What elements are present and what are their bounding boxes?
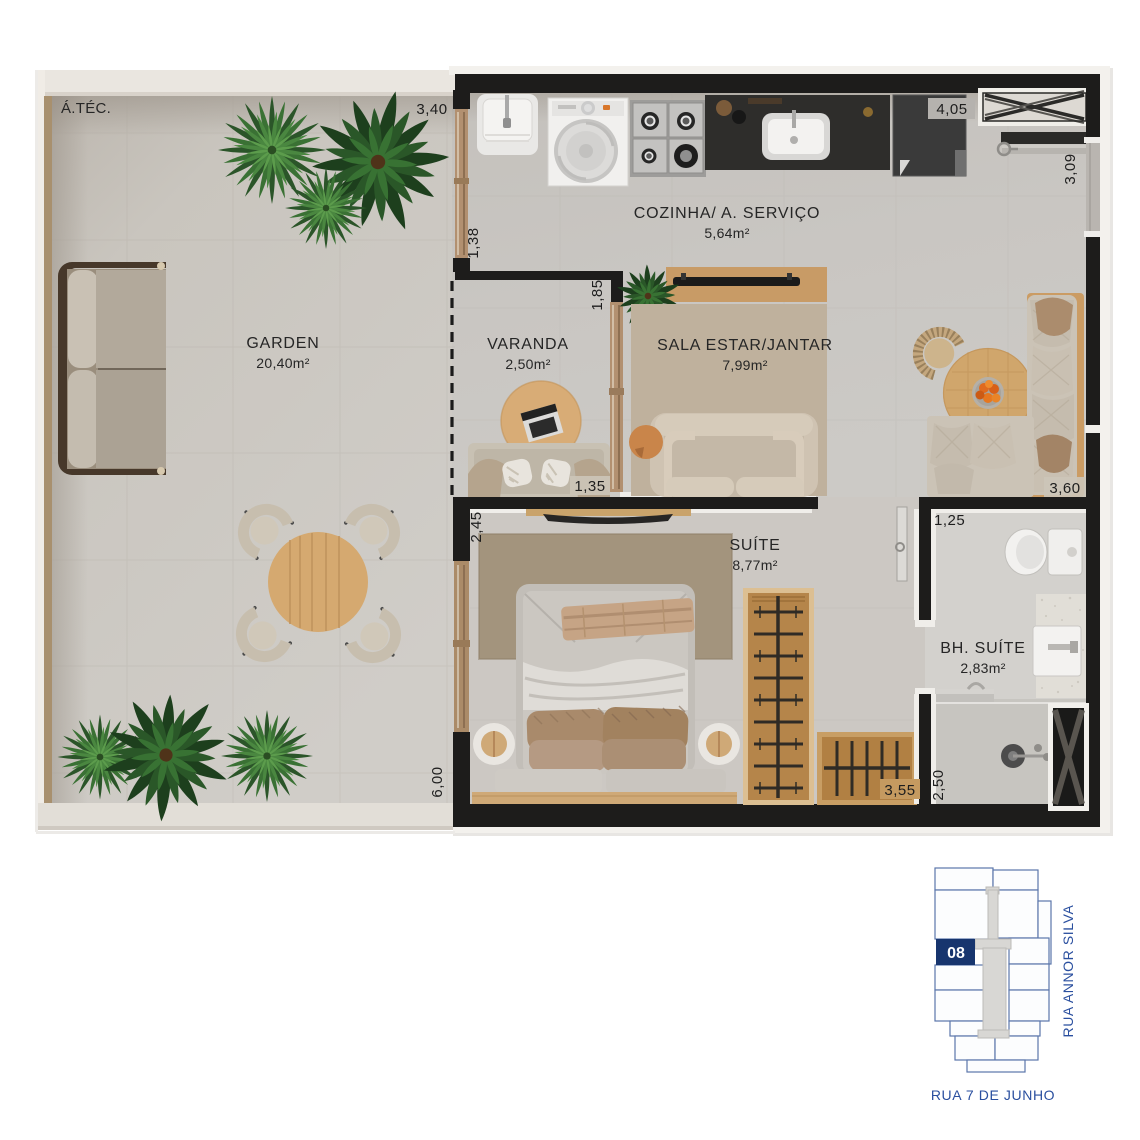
svg-text:5,64m²: 5,64m² [704, 225, 749, 241]
svg-text:GARDEN: GARDEN [246, 335, 319, 352]
svg-text:6,00: 6,00 [429, 766, 446, 797]
svg-text:2,50: 2,50 [930, 769, 947, 800]
svg-text:BH. SUÍTE: BH. SUÍTE [940, 638, 1025, 657]
svg-text:7,99m²: 7,99m² [722, 357, 767, 373]
svg-text:SUÍTE: SUÍTE [729, 535, 780, 554]
svg-text:1,35: 1,35 [574, 478, 605, 495]
svg-text:3,60: 3,60 [1049, 480, 1080, 497]
svg-text:20,40m²: 20,40m² [256, 355, 309, 371]
svg-text:3,55: 3,55 [884, 782, 915, 799]
svg-text:2,45: 2,45 [468, 511, 485, 542]
svg-text:1,25: 1,25 [934, 512, 965, 529]
svg-text:1,38: 1,38 [465, 227, 482, 258]
svg-text:08: 08 [947, 945, 965, 962]
svg-text:8,77m²: 8,77m² [732, 557, 777, 573]
svg-text:RUA 7 DE JUNHO: RUA 7 DE JUNHO [931, 1087, 1055, 1103]
svg-text:3,09: 3,09 [1062, 153, 1079, 184]
svg-text:2,83m²: 2,83m² [960, 660, 1005, 676]
svg-text:1,85: 1,85 [589, 279, 606, 310]
svg-text:SALA ESTAR/JANTAR: SALA ESTAR/JANTAR [657, 337, 833, 354]
svg-text:3,40: 3,40 [416, 101, 447, 118]
svg-text:2,50m²: 2,50m² [505, 356, 550, 372]
svg-text:Á.TÉC.: Á.TÉC. [61, 100, 111, 117]
svg-text:RUA ANNOR SILVA: RUA ANNOR SILVA [1060, 904, 1076, 1037]
svg-text:VARANDA: VARANDA [487, 336, 569, 353]
svg-text:COZINHA/ A. SERVIÇO: COZINHA/ A. SERVIÇO [634, 205, 821, 222]
svg-text:4,05: 4,05 [936, 101, 967, 118]
